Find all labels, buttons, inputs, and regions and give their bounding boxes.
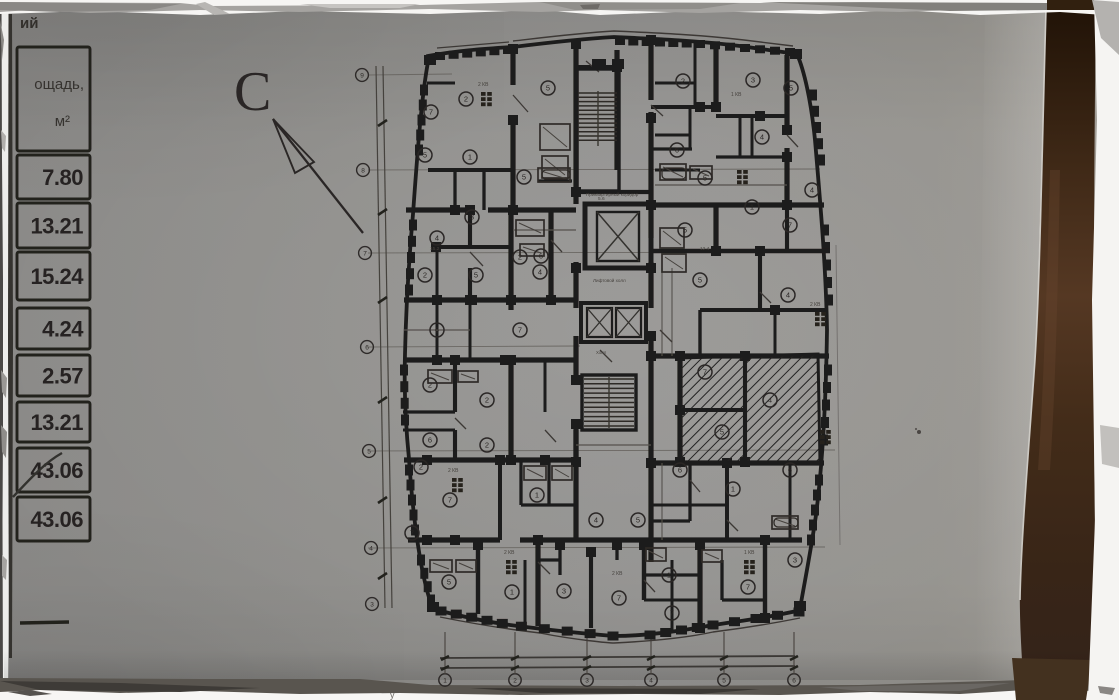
svg-text:5: 5 [636,516,640,525]
svg-text:8: 8 [361,167,365,174]
svg-text:3: 3 [370,601,374,608]
svg-text:3: 3 [793,556,797,565]
svg-text:7: 7 [410,529,414,538]
svg-text:5: 5 [703,174,707,183]
svg-text:у: у [390,690,395,700]
svg-text:ощадь,: ощадь, [34,76,84,93]
svg-text:5: 5 [474,271,478,280]
svg-text:2 КВ: 2 КВ [810,302,821,308]
svg-text:6: 6 [792,677,796,684]
svg-text:6: 6 [675,146,679,155]
svg-text:7: 7 [617,594,621,603]
svg-text:7: 7 [746,583,750,592]
svg-text:6: 6 [788,466,792,475]
svg-text:13.21: 13.21 [30,410,83,435]
svg-text:2: 2 [513,677,517,684]
svg-text:1: 1 [443,677,447,684]
svg-text:15.2: 15.2 [430,246,440,252]
svg-text:4: 4 [786,291,790,300]
svg-text:5: 5 [722,677,726,684]
svg-text:43.06: 43.06 [30,507,83,532]
svg-text:7: 7 [518,326,522,335]
svg-text:1: 1 [535,491,539,500]
svg-text:2 КВ: 2 КВ [448,468,459,474]
svg-text:5: 5 [789,84,793,93]
svg-text:м²: м² [55,113,70,130]
svg-text:2: 2 [423,271,427,280]
svg-text:3: 3 [751,76,755,85]
svg-text:9: 9 [360,72,364,79]
svg-text:2: 2 [485,396,489,405]
svg-text:5: 5 [423,151,427,160]
svg-text:Лифтовой холл: Лифтовой холл [593,277,626,283]
svg-text:7: 7 [363,250,367,257]
svg-text:4: 4 [369,545,373,552]
svg-text:6: 6 [365,344,369,351]
svg-text:7: 7 [448,496,452,505]
svg-text:6: 6 [539,252,543,261]
svg-text:2 КВ: 2 КВ [612,571,623,577]
svg-text:3: 3 [562,587,566,596]
svg-text:2: 2 [681,77,685,86]
svg-text:2: 2 [419,463,423,472]
svg-text:1: 1 [667,571,671,580]
svg-text:5: 5 [447,578,451,587]
svg-text:2.57: 2.57 [42,364,83,389]
svg-text:7: 7 [788,221,792,230]
svg-text:2: 2 [518,253,522,262]
svg-text:4: 4 [594,516,598,525]
svg-text:7.80: 7.80 [42,165,83,190]
svg-text:4: 4 [649,677,653,684]
svg-text:2 КВ: 2 КВ [504,550,515,556]
svg-text:7: 7 [429,108,433,117]
svg-text:4.24: 4.24 [42,317,84,342]
svg-text:5: 5 [698,276,702,285]
svg-text:5: 5 [367,448,371,455]
svg-text:C: C [234,61,271,123]
svg-text:2 КВ: 2 КВ [478,82,489,88]
svg-text:13.21: 13.21 [30,214,83,239]
svg-text:15.24: 15.24 [30,264,84,289]
svg-text:Холл: Холл [596,350,607,355]
svg-text:7: 7 [670,609,674,618]
svg-text:3: 3 [585,677,589,684]
svg-text:4: 4 [810,186,814,195]
svg-text:1 КВ: 1 КВ [731,92,742,98]
svg-text:5: 5 [522,173,526,182]
svg-text:3: 3 [470,213,474,222]
svg-text:ий: ий [20,15,38,32]
svg-text:7: 7 [703,368,707,377]
svg-text:4: 4 [538,268,542,277]
svg-text:12.4: 12.4 [700,246,710,252]
svg-text:6: 6 [435,326,439,335]
svg-text:1: 1 [750,203,754,212]
svg-text:5: 5 [720,428,724,437]
svg-text:4: 4 [760,133,764,142]
svg-text:2: 2 [428,381,432,390]
svg-text:6: 6 [678,466,682,475]
svg-text:1: 1 [510,588,514,597]
svg-text:5: 5 [683,226,687,235]
svg-text:Приквартирный коридор: Приквартирный коридор [586,191,639,197]
svg-text:1 КВ: 1 КВ [744,550,755,556]
svg-text:2: 2 [485,441,489,450]
svg-text:5: 5 [546,84,550,93]
svg-text:1: 1 [731,485,735,494]
svg-text:5.6: 5.6 [598,196,605,202]
svg-text:4: 4 [768,396,772,405]
svg-text:4: 4 [435,234,439,243]
svg-text:6: 6 [428,436,432,445]
svg-text:2: 2 [464,95,468,104]
svg-text:1: 1 [468,153,472,162]
